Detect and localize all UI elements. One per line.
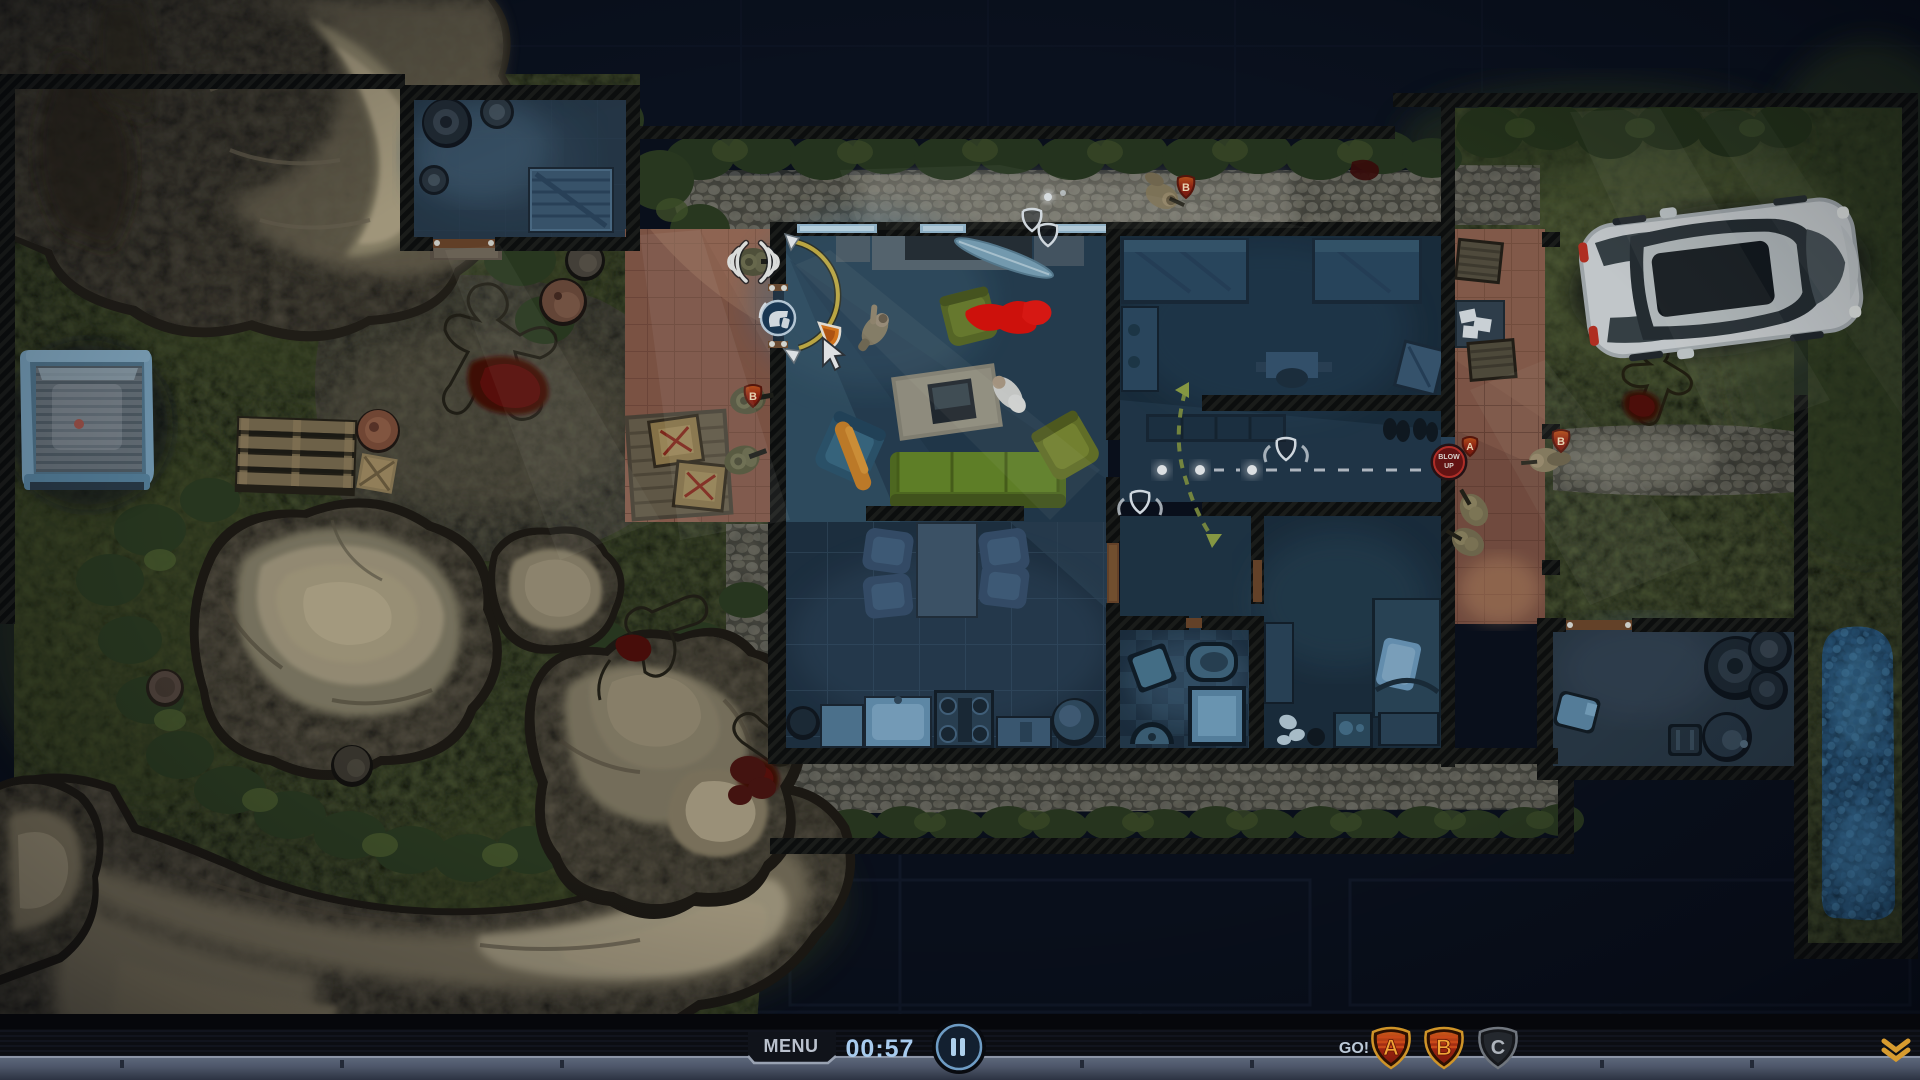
svg-text:00:57: 00:57 — [846, 1035, 915, 1063]
svg-text:MENU: MENU — [764, 1036, 819, 1056]
svg-text:GO!: GO! — [1339, 1040, 1369, 1057]
svg-text:A: A — [1383, 1035, 1399, 1060]
svg-text:C: C — [1491, 1037, 1505, 1059]
svg-text:B: B — [1436, 1035, 1452, 1060]
